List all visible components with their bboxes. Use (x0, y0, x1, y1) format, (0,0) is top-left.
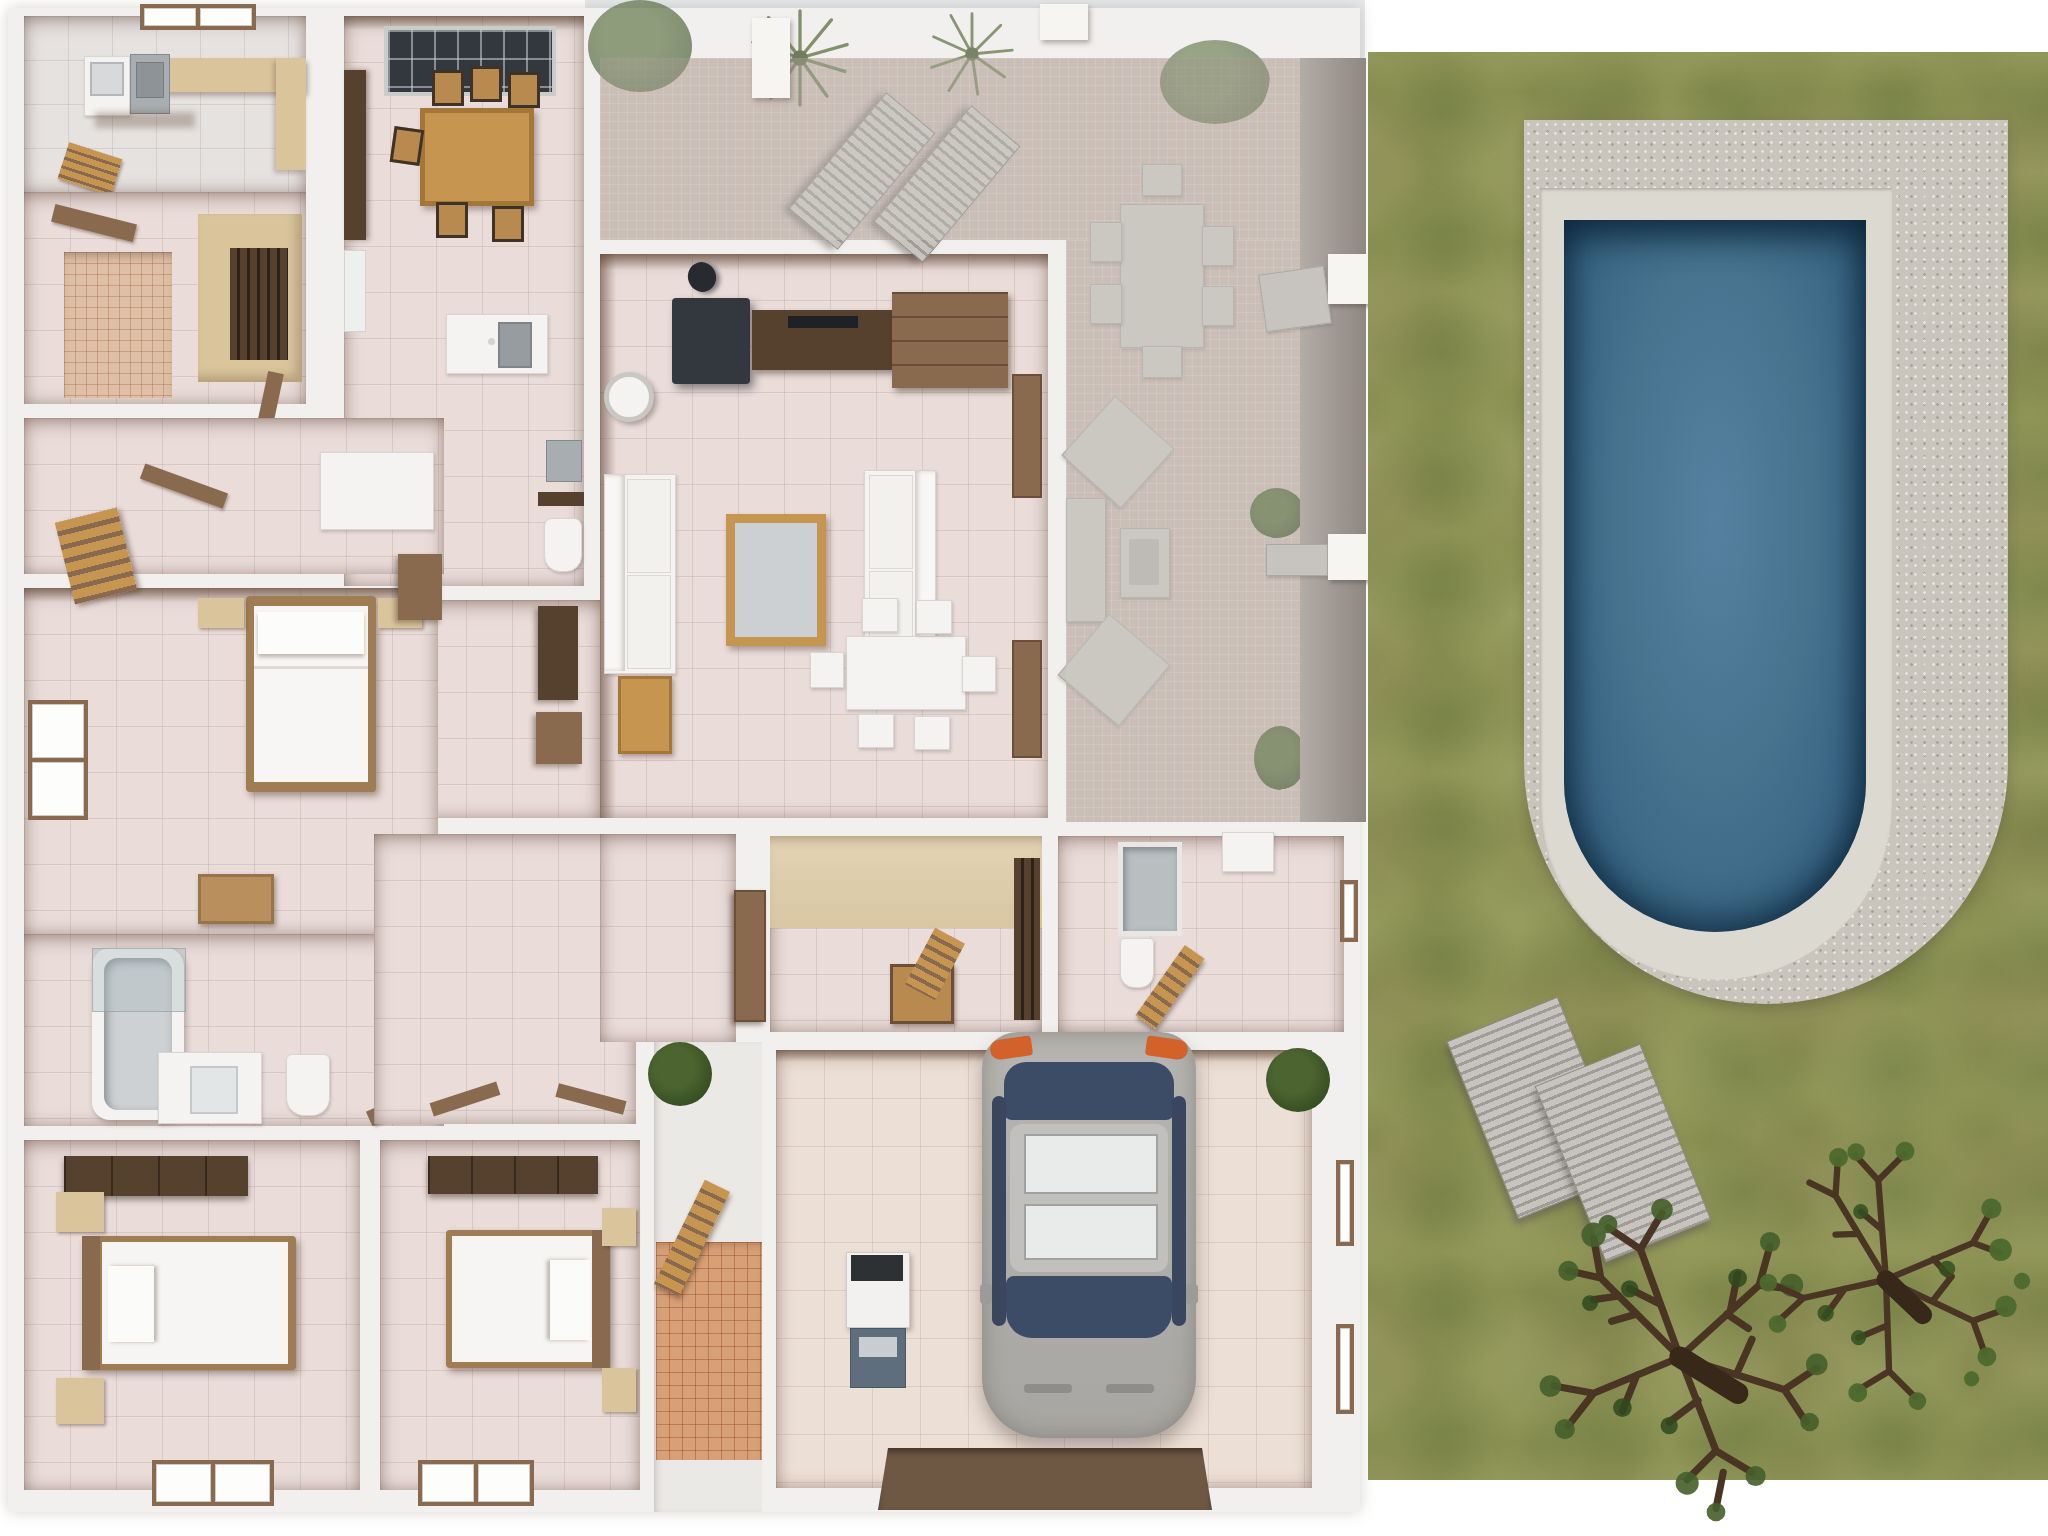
window-pane (32, 704, 84, 758)
front-door (734, 890, 766, 1022)
window-pane (1340, 1164, 1350, 1242)
pantry-shelf (538, 492, 584, 506)
kitchen-faucet (488, 338, 495, 345)
nightstand (56, 1192, 104, 1232)
pillow (108, 1266, 154, 1342)
master-bed (246, 596, 376, 792)
car (982, 1032, 1196, 1438)
kitchen-sink-counter (446, 314, 548, 374)
bed (446, 1230, 610, 1368)
pergola-beam (1258, 266, 1331, 333)
wardrobe (428, 1156, 598, 1194)
car-mirror (980, 1284, 992, 1304)
patio-shade-veil (600, 58, 1356, 240)
kitchen-chair (492, 206, 524, 242)
car-windshield (1006, 1276, 1172, 1338)
window-pane (1344, 884, 1354, 938)
dining-chair (858, 714, 894, 748)
garage-window (1336, 1160, 1354, 1246)
small-bathroom-floor (64, 252, 172, 398)
nightstand (602, 1208, 636, 1246)
closet-slatted-wardrobe (230, 248, 288, 360)
garage-corner-plant (1266, 1048, 1330, 1112)
master-window (28, 700, 88, 820)
rear-bathroom-floor (1058, 836, 1344, 1032)
patio-top-pillar (752, 18, 790, 98)
patio-east-wall (1300, 58, 1366, 822)
rear-toilet (1120, 938, 1154, 988)
pantry-sink (546, 440, 582, 482)
vanity-basin (190, 1066, 238, 1114)
car-hood-vent (1024, 1384, 1072, 1393)
bed (82, 1236, 296, 1370)
heater-slot (851, 1255, 903, 1281)
window-pane (144, 8, 196, 26)
entry-corridor-floor (600, 834, 736, 1042)
pergola-beam (1266, 544, 1328, 576)
headboard (82, 1236, 100, 1370)
blanket-fold (254, 666, 368, 669)
living-wall-face-top (600, 254, 1048, 270)
kitchen-wall-cabinet (344, 70, 366, 240)
wall-wood-panel (1012, 640, 1042, 758)
bedroom-floor-window (418, 1460, 534, 1506)
car-side-window (1172, 1096, 1186, 1326)
heater-card (859, 1337, 897, 1357)
hall-cabinet-tall (538, 606, 578, 700)
dining-table (846, 636, 966, 710)
hall-cabinet-low (536, 712, 582, 764)
kitchen-table (420, 108, 534, 206)
bedroom-floor-window (152, 1460, 274, 1506)
car-hood-vent (1106, 1384, 1154, 1393)
headboard (592, 1230, 610, 1368)
car-rear-window (1004, 1062, 1174, 1120)
pergola-pillar (1328, 254, 1370, 304)
car-mirror (1186, 1284, 1198, 1304)
pillow (258, 612, 364, 654)
south-hall-floor (374, 834, 636, 1124)
sofa-left (604, 474, 676, 674)
master-dresser (398, 554, 442, 620)
tv (788, 316, 858, 328)
garage-window (1336, 1324, 1354, 1414)
kitchen-chair (470, 66, 502, 102)
storage-chest (198, 874, 274, 924)
window-pane (200, 8, 252, 26)
sofa-back-cushion (605, 475, 625, 671)
coffee-table (726, 514, 826, 646)
dining-chair (962, 656, 996, 692)
kitchen-chair (436, 202, 468, 238)
nightstand (198, 598, 244, 628)
shower-screen (92, 948, 186, 1012)
sofa-seat-cushion (627, 575, 671, 669)
kitchen-sink (498, 322, 532, 368)
window-pane (422, 1464, 474, 1502)
pool-water (1564, 220, 1866, 932)
dining-chair (810, 652, 844, 688)
dining-chair (862, 598, 898, 632)
kitchen-chair (508, 72, 540, 108)
window-pane (32, 762, 84, 816)
utility-shadow (95, 112, 195, 128)
car-side-window (992, 1096, 1006, 1326)
window-pane (478, 1464, 530, 1502)
sofa-seat-cushion (627, 479, 671, 573)
side-table (618, 676, 672, 754)
rear-window (1340, 880, 1358, 942)
wardrobe (64, 1156, 248, 1196)
window-pane (215, 1464, 270, 1502)
steel-sink-basin (136, 62, 164, 98)
vestibule-slat-door (1014, 858, 1040, 1020)
kitchen-chair (390, 126, 425, 166)
car-sunroof (1024, 1134, 1158, 1194)
dining-chair (914, 716, 950, 750)
nightstand (56, 1378, 104, 1424)
hall-white-cabinet (320, 452, 434, 530)
walkway-plant (648, 1042, 712, 1106)
water-heater (846, 1252, 910, 1328)
shower (1118, 842, 1182, 936)
patio-top-pillar (1040, 4, 1088, 40)
nightstand (602, 1368, 636, 1412)
wall-wood-panel (1012, 374, 1042, 498)
car-sunroof (1024, 1204, 1158, 1260)
pergola-pillar (1328, 534, 1370, 580)
washing-machine-door (90, 62, 124, 96)
floor-plan-render (0, 0, 2048, 1536)
garage-door-mat (878, 1448, 1212, 1510)
vestibule-beige-wall (770, 836, 1042, 928)
toilet (286, 1054, 330, 1116)
floor-lamp (604, 372, 654, 422)
utility-roof-window (140, 4, 256, 30)
kitchen-wall-white-panel (344, 250, 366, 332)
window-pane (1340, 1328, 1350, 1410)
utility-counter-side (276, 58, 306, 170)
kitchen-chair (432, 70, 464, 106)
pillow (550, 1260, 590, 1340)
rear-sink (1222, 832, 1274, 872)
sofa-seat-cushion (869, 475, 913, 569)
window-pane (156, 1464, 211, 1502)
heater-panel (850, 1328, 906, 1388)
dining-chair (916, 600, 952, 634)
wood-stove (672, 298, 750, 384)
pantry-toilet (544, 518, 582, 572)
living-cabinet (892, 292, 1008, 388)
